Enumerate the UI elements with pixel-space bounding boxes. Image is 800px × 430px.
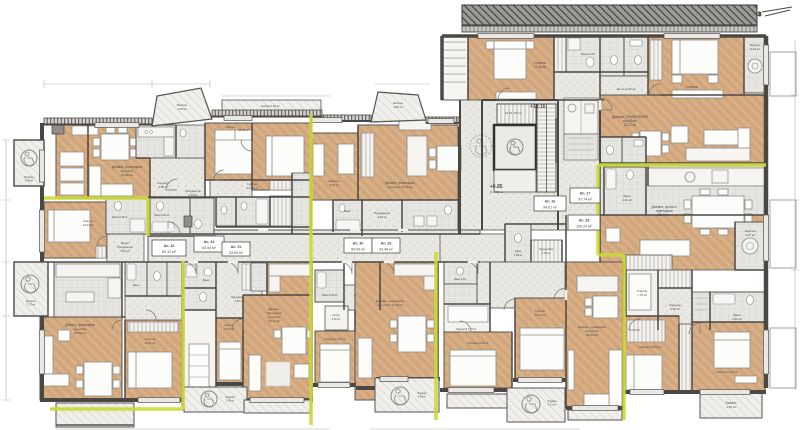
svg-text:3.75 м²: 3.75 м² (27, 303, 36, 307)
svg-text:Баня: Баня (344, 209, 351, 213)
svg-text:13.34 м²: 13.34 м² (83, 223, 94, 227)
svg-text:Баня: Баня (515, 249, 522, 253)
svg-text:3.68 м²: 3.68 м² (25, 179, 34, 183)
svg-text:з: з (758, 11, 761, 18)
svg-text:Ап. 27: Ап. 27 (580, 192, 591, 196)
svg-text:Баня 3.63: Баня 3.63 (581, 52, 595, 56)
svg-text:Склад: Склад (332, 313, 340, 317)
svg-text:Спалня: Спалня (225, 125, 236, 129)
svg-text:Ап. 31: Ап. 31 (231, 245, 242, 249)
svg-text:Баня: Баня (203, 278, 210, 282)
svg-text:4.81 м²: 4.81 м² (234, 299, 243, 303)
svg-text:Ап. 29: Ап. 29 (381, 242, 392, 246)
svg-text:4.26 м²: 4.26 м² (732, 317, 742, 321)
svg-text:4.06 м²: 4.06 м² (377, 215, 386, 219)
svg-text:Баня 3.20 м²: Баня 3.20 м² (154, 213, 169, 217)
svg-text:Спалня 15.32 м²: Спалня 15.32 м² (467, 341, 488, 345)
svg-text:Ап. 33: Ап. 33 (204, 240, 215, 244)
svg-text:4.40 м²: 4.40 м² (622, 198, 632, 202)
svg-text:4.04 м²: 4.04 м² (418, 395, 427, 399)
svg-text:Гардероб 2.76 м²: Гардероб 2.76 м² (456, 327, 477, 331)
svg-text:30.27 м²: 30.27 м² (624, 123, 636, 127)
svg-text:кухн.бокс 11.33 м²: кухн.бокс 11.33 м² (377, 303, 402, 307)
svg-text:4.13 м²: 4.13 м² (548, 403, 557, 407)
svg-text:кухн.бокс 15.95 м²: кухн.бокс 15.95 м² (387, 185, 412, 189)
svg-text:Ап. 32: Ап. 32 (164, 244, 175, 248)
svg-text:Гардеробна: Гардеробна (539, 247, 554, 251)
svg-text:55.69 м²: 55.69 м² (351, 248, 365, 252)
svg-text:Ап. 30: Ап. 30 (353, 242, 364, 246)
svg-text:1.29 м²: 1.29 м² (177, 107, 186, 111)
svg-text:2.84 м²: 2.84 м² (226, 399, 235, 403)
svg-text:Балкон: Балкон (26, 299, 36, 303)
svg-text:17.65 м²: 17.65 м² (534, 65, 546, 69)
svg-text:Спалня 11.33 м²: Спалня 11.33 м² (325, 337, 346, 341)
svg-text:33.84 м²: 33.84 м² (229, 251, 243, 255)
svg-text:97.74 м²: 97.74 м² (578, 198, 592, 202)
svg-text:Ап. 26: Ап. 26 (545, 200, 556, 204)
svg-text:Спалня 11.22 м²: Спалня 11.22 м² (716, 370, 739, 374)
svg-text:10.39 | 56 см: 10.39 | 56 см (505, 111, 522, 115)
svg-text:5.92 м²: 5.92 м² (120, 249, 129, 253)
svg-text:3.96 м²: 3.96 м² (670, 307, 680, 311)
svg-text:2.60 м²: 2.60 м² (332, 317, 341, 321)
svg-text:94.61 м²: 94.61 м² (543, 206, 557, 210)
svg-text:Тераса 0.92 м²: Тераса 0.92 м² (260, 104, 279, 108)
svg-text:Баня 3.48 м²: Баня 3.48 м² (112, 215, 127, 219)
svg-text:Антре 2.90 м²: Антре 2.90 м² (617, 87, 636, 91)
svg-text:Спалня 10.82 м²: Спалня 10.82 м² (639, 345, 662, 349)
svg-text:Ап. 28: Ап. 28 (579, 219, 590, 223)
svg-text:Лоджия: Лоджия (417, 391, 427, 395)
svg-text:4.28 м²: 4.28 м² (542, 251, 551, 255)
svg-text:100.24 м²: 100.24 м² (576, 225, 592, 229)
svg-text:26.56 м²: 26.56 м² (74, 331, 85, 335)
svg-text:Лоджия: Лоджия (225, 395, 235, 399)
svg-text:32.41 м²: 32.41 м² (268, 319, 279, 323)
svg-text:4.45 м²: 4.45 м² (726, 405, 736, 409)
svg-text:3.23 м²: 3.23 м² (750, 47, 760, 51)
svg-text:Баня 3.61: Баня 3.61 (454, 277, 466, 281)
svg-text:+10.16: +10.16 (530, 104, 546, 110)
svg-text:Баня: Баня (133, 283, 140, 287)
svg-text:Балкон: Балкон (24, 175, 34, 179)
svg-text:6.05 м²: 6.05 м² (329, 183, 338, 187)
svg-text:Н +363 см: Н +363 см (490, 190, 503, 194)
svg-text:35.46 м²: 35.46 м² (586, 333, 597, 337)
svg-text:89.32 м²: 89.32 м² (162, 250, 176, 254)
svg-text:33.48 м²: 33.48 м² (379, 248, 393, 252)
svg-text:12.01 м²: 12.01 м² (535, 313, 546, 317)
svg-text:7.75 м²: 7.75 м² (637, 293, 647, 297)
svg-text:3.66 м²: 3.66 м² (393, 105, 402, 109)
svg-text:Лоджия: Лоджия (547, 399, 557, 403)
svg-text:83.54 м²: 83.54 м² (202, 246, 216, 250)
svg-text:21.80 м²: 21.80 м² (121, 173, 132, 177)
svg-text:12.01 м²: 12.01 м² (145, 341, 156, 345)
svg-text:4.07 м²: 4.07 м² (745, 233, 755, 237)
svg-text:11.15 м²: 11.15 м² (239, 128, 249, 132)
svg-text:Баня 4.43 м²: Баня 4.43 м² (322, 293, 337, 297)
svg-text:4.08 м²: 4.08 м² (514, 253, 523, 257)
